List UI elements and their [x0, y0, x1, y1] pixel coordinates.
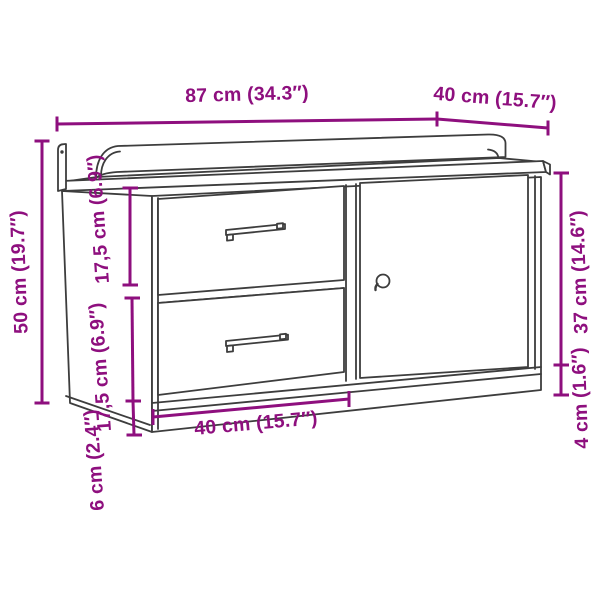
dimension-label-total-height: 50 cm (19.7″): [6, 210, 33, 334]
dimension-line-top-depth: [437, 119, 548, 136]
drawer-upper: [158, 186, 344, 295]
dimension-label-door-height: 37 cm (14.6″): [566, 210, 593, 334]
left-support-peg: [60, 150, 63, 153]
door-knob: [377, 275, 390, 288]
dimension-diagram: 87 cm (34.3″) 40 cm (15.7″) 50 cm (19.7″…: [0, 0, 600, 600]
dimension-label-top-width: 87 cm (34.3″): [185, 82, 309, 108]
dimension-label-base-height: 4 cm (1.6″): [568, 347, 595, 449]
dimension-line-top-width: [57, 112, 437, 132]
dimension-line-total-height: [35, 141, 50, 403]
dimension-line-base-height: [554, 365, 570, 395]
dimension-line-door-height: [554, 173, 570, 365]
